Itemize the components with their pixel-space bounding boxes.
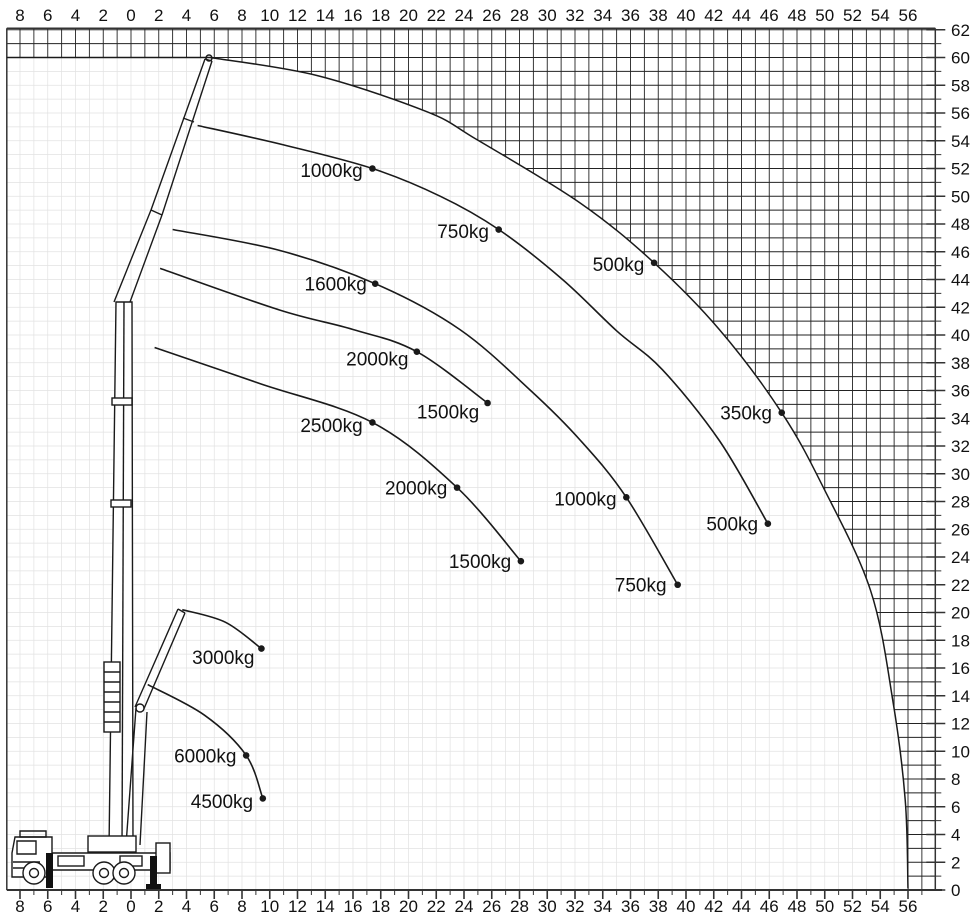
bottom-axis-label: 26 — [482, 897, 501, 916]
top-axis-label: 46 — [760, 6, 779, 25]
right-axis-label: 62 — [951, 21, 970, 40]
capacity-dot — [372, 280, 379, 287]
top-axis-label: 0 — [126, 6, 135, 25]
right-axis-label: 48 — [951, 215, 970, 234]
top-axis-label: 10 — [260, 6, 279, 25]
top-axis-label: 8 — [15, 6, 24, 25]
top-axis-label: 34 — [593, 6, 612, 25]
outrigger-rear — [150, 856, 157, 888]
bottom-axis-label: 6 — [43, 897, 52, 916]
top-axis-label: 14 — [316, 6, 335, 25]
right-axis-label: 58 — [951, 76, 970, 95]
truck-wheel — [93, 862, 115, 884]
top-axis-label: 44 — [732, 6, 751, 25]
top-axis-label: 4 — [71, 6, 80, 25]
bottom-axis-label: 18 — [371, 897, 390, 916]
top-axis-label: 24 — [455, 6, 474, 25]
capacity-dot — [674, 581, 681, 588]
right-axis-label: 34 — [951, 409, 970, 428]
right-axis-label: 12 — [951, 715, 970, 734]
capacity-dot — [243, 752, 250, 759]
right-axis-label: 36 — [951, 382, 970, 401]
outrigger-front — [46, 853, 53, 888]
top-axis-label: 20 — [399, 6, 418, 25]
right-axis-label: 26 — [951, 520, 970, 539]
capacity-dot — [778, 409, 785, 416]
bottom-axis-label: 4 — [182, 897, 191, 916]
top-axis-label: 42 — [704, 6, 723, 25]
capacity-label: 2000kg — [346, 350, 408, 371]
bottom-axis-label: 44 — [732, 897, 751, 916]
capacity-dot — [258, 645, 265, 652]
capacity-dot — [651, 260, 658, 267]
bottom-axis-label: 40 — [677, 897, 696, 916]
bottom-axis-label: 0 — [126, 897, 135, 916]
bottom-axis-label: 16 — [344, 897, 363, 916]
truck-wheel — [113, 862, 135, 884]
top-axis-label: 54 — [871, 6, 890, 25]
bottom-axis-label: 2 — [154, 897, 163, 916]
top-axis-label: 2 — [154, 6, 163, 25]
top-axis-label: 56 — [899, 6, 918, 25]
top-axis-label: 40 — [677, 6, 696, 25]
bottom-axis-label: 50 — [815, 897, 834, 916]
bottom-axis-label: 56 — [899, 897, 918, 916]
right-axis-label: 8 — [951, 770, 960, 789]
capacity-label: 2000kg — [385, 479, 447, 500]
bottom-axis-label: 34 — [593, 897, 612, 916]
bottom-axis-label: 6 — [210, 897, 219, 916]
capacity-dot — [765, 520, 772, 527]
capacity-dot — [454, 484, 461, 491]
top-axis-label: 26 — [482, 6, 501, 25]
outrigger-rear-pad — [146, 884, 161, 889]
top-axis-label: 22 — [427, 6, 446, 25]
capacity-label: 1000kg — [554, 490, 616, 511]
bottom-axis-label: 48 — [788, 897, 807, 916]
capacity-dot — [518, 558, 525, 565]
right-axis-label: 10 — [951, 742, 970, 761]
bottom-axis-label: 32 — [566, 897, 585, 916]
right-axis-label: 28 — [951, 493, 970, 512]
top-axis-label: 52 — [843, 6, 862, 25]
load-chart-page: 500kg350kg 1000kg750kg500kg1600kg1000kg7… — [0, 0, 978, 920]
capacity-label: 750kg — [615, 576, 667, 597]
truck-rear-housing — [156, 843, 170, 873]
capacity-dot — [484, 400, 491, 407]
capacity-label: 750kg — [437, 222, 489, 243]
top-axis-label: 18 — [371, 6, 390, 25]
bottom-axis-label: 10 — [260, 897, 279, 916]
top-axis-label: 36 — [621, 6, 640, 25]
top-axis-label: 28 — [510, 6, 529, 25]
right-axis-label: 46 — [951, 243, 970, 262]
right-axis-label: 4 — [951, 826, 960, 845]
capacity-dot — [495, 226, 502, 233]
load-chart: 500kg350kg 1000kg750kg500kg1600kg1000kg7… — [0, 0, 978, 920]
right-axis-label: 32 — [951, 437, 970, 456]
capacity-label: 1000kg — [300, 161, 362, 182]
right-axis-label: 20 — [951, 604, 970, 623]
truck-wheel — [23, 862, 45, 884]
top-axis-label: 12 — [288, 6, 307, 25]
right-axis-label: 38 — [951, 354, 970, 373]
bottom-axis-label: 8 — [237, 897, 246, 916]
knuckle-joint — [136, 704, 144, 712]
bottom-axis-label: 4 — [71, 897, 80, 916]
right-axis-label: 40 — [951, 326, 970, 345]
right-axis-label: 0 — [951, 881, 960, 900]
capacity-label: 4500kg — [191, 792, 253, 813]
right-axis-label: 22 — [951, 576, 970, 595]
capacity-label: 6000kg — [174, 746, 236, 767]
right-axis-label: 14 — [951, 687, 970, 706]
bottom-axis-label: 12 — [288, 897, 307, 916]
capacity-label: 3000kg — [192, 648, 254, 669]
top-axis-label: 2 — [99, 6, 108, 25]
top-axis-label: 30 — [538, 6, 557, 25]
right-axis-label: 56 — [951, 104, 970, 123]
bottom-axis-label: 28 — [510, 897, 529, 916]
capacity-dot — [369, 419, 376, 426]
top-axis-label: 6 — [210, 6, 219, 25]
capacity-label: 2500kg — [300, 416, 362, 437]
bottom-axis-label: 36 — [621, 897, 640, 916]
crane-turret — [88, 836, 136, 852]
bottom-axis-label: 46 — [760, 897, 779, 916]
bottom-axis-label: 42 — [704, 897, 723, 916]
capacity-label: 350kg — [720, 404, 772, 425]
right-axis-label: 30 — [951, 465, 970, 484]
capacity-label: 1600kg — [305, 275, 367, 296]
bottom-axis-label: 24 — [455, 897, 474, 916]
top-axis-label: 6 — [43, 6, 52, 25]
capacity-dot — [260, 795, 267, 802]
top-axis-label: 48 — [788, 6, 807, 25]
bottom-axis-label: 2 — [99, 897, 108, 916]
capacity-label: 1500kg — [417, 402, 479, 423]
bottom-axis-label: 8 — [15, 897, 24, 916]
right-axis-label: 52 — [951, 160, 970, 179]
right-axis-label: 54 — [951, 132, 970, 151]
top-axis-label: 50 — [815, 6, 834, 25]
bottom-axis-label: 20 — [399, 897, 418, 916]
top-axis-label: 38 — [649, 6, 668, 25]
capacity-label: 1500kg — [449, 552, 511, 573]
right-axis-label: 2 — [951, 853, 960, 872]
capacity-dot — [623, 494, 630, 501]
bottom-axis-label: 14 — [316, 897, 335, 916]
bottom-axis-label: 22 — [427, 897, 446, 916]
right-axis-label: 18 — [951, 631, 970, 650]
right-axis-label: 50 — [951, 187, 970, 206]
bottom-axis-label: 30 — [538, 897, 557, 916]
right-axis-label: 24 — [951, 548, 970, 567]
right-axis-label: 44 — [951, 271, 970, 290]
boom-collar — [111, 500, 131, 507]
boom-collar — [112, 398, 132, 405]
bottom-axis-label: 52 — [843, 897, 862, 916]
bottom-axis-label: 38 — [649, 897, 668, 916]
top-axis-label: 4 — [182, 6, 191, 25]
capacity-label: 500kg — [706, 515, 758, 536]
top-axis-label: 32 — [566, 6, 585, 25]
right-axis-label: 42 — [951, 298, 970, 317]
capacity-label: 500kg — [593, 255, 645, 276]
right-axis-label: 60 — [951, 49, 970, 68]
right-axis-label: 6 — [951, 798, 960, 817]
top-axis-label: 8 — [237, 6, 246, 25]
bottom-axis-label: 54 — [871, 897, 890, 916]
right-axis-label: 16 — [951, 659, 970, 678]
top-axis-label: 16 — [344, 6, 363, 25]
capacity-dot — [369, 165, 376, 172]
capacity-dot — [414, 348, 421, 355]
